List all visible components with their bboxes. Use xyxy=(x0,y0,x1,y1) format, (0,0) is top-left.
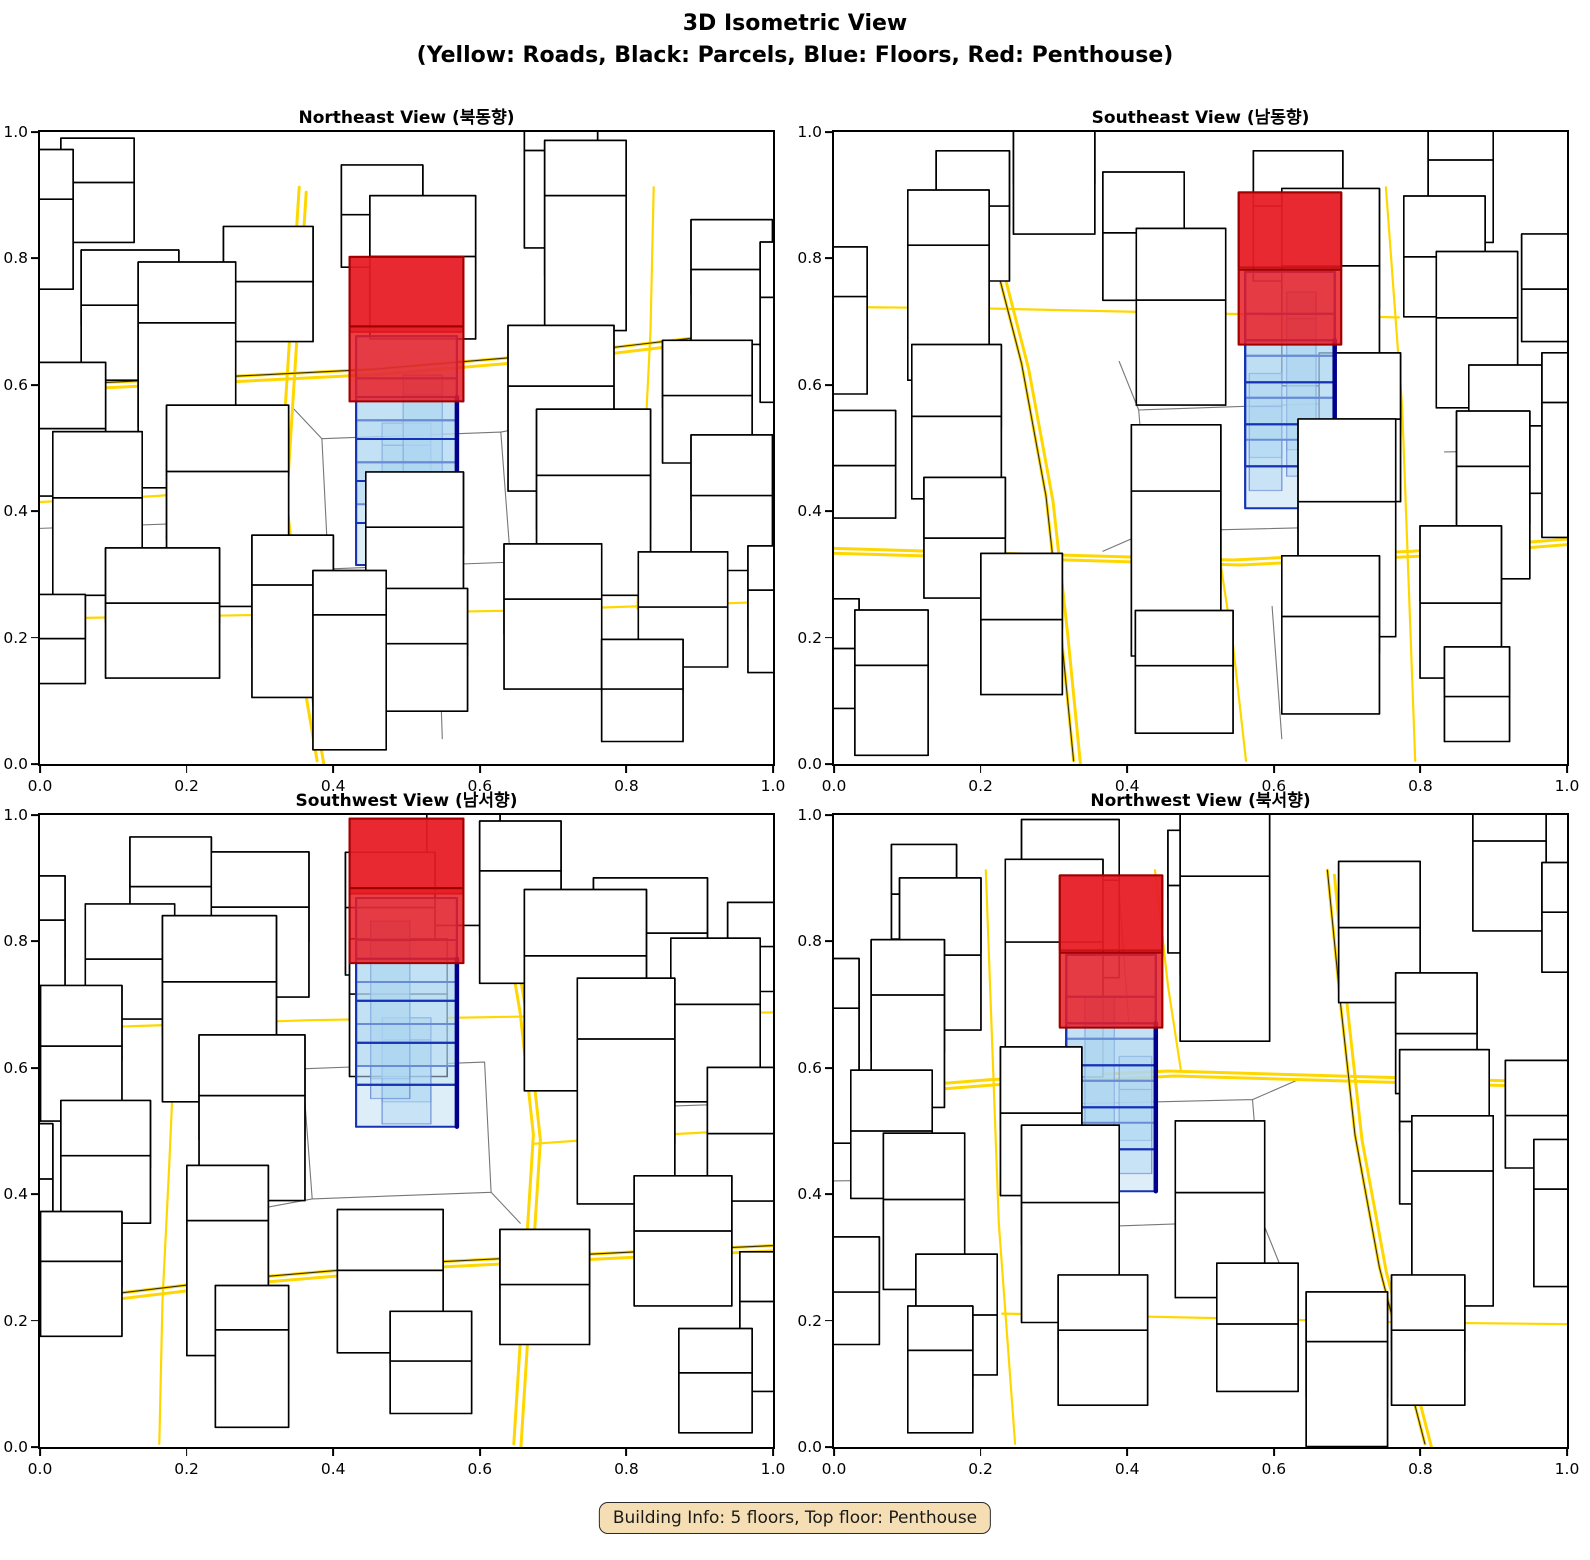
x-tick-mark xyxy=(332,766,334,773)
subplot-northwest: Northwest View (북서향) 0.00.00.20.20.40.40… xyxy=(832,813,1569,1449)
scene-northeast xyxy=(40,132,773,764)
figure: 3D Isometric View (Yellow: Roads, Black:… xyxy=(0,0,1590,1560)
x-tick-mark xyxy=(1419,1449,1421,1456)
y-tick-mark xyxy=(825,814,832,816)
y-tick-mark xyxy=(31,510,38,512)
y-tick-label: 1.0 xyxy=(797,806,822,824)
x-tick-mark xyxy=(332,1449,334,1456)
x-tick-label: 0.8 xyxy=(1408,1460,1433,1478)
x-tick-mark xyxy=(833,1449,835,1456)
x-tick-label: 1.0 xyxy=(761,1460,786,1478)
y-tick-mark xyxy=(825,510,832,512)
subplot-northeast: Northeast View (북동향) 0.00.00.20.20.40.40… xyxy=(38,130,775,766)
x-tick-mark xyxy=(625,1449,627,1456)
x-tick-mark xyxy=(625,766,627,773)
y-tick-mark xyxy=(31,763,38,765)
y-tick-label: 0.6 xyxy=(3,376,28,394)
y-tick-mark xyxy=(825,1446,832,1448)
x-tick-mark xyxy=(1566,1449,1568,1456)
x-tick-label: 0.4 xyxy=(1115,1460,1140,1478)
y-tick-label: 1.0 xyxy=(3,806,28,824)
building-info-annotation: Building Info: 5 floors, Top floor: Pent… xyxy=(599,1502,991,1534)
subplot-northeast-title: Northeast View (북동향) xyxy=(38,103,775,128)
y-tick-label: 0.0 xyxy=(3,1438,28,1456)
x-tick-mark xyxy=(39,766,41,773)
x-tick-label: 0.2 xyxy=(174,1460,199,1478)
subplot-southeast-title: Southeast View (남동향) xyxy=(832,103,1569,128)
y-tick-mark xyxy=(825,131,832,133)
subplot-northwest-title: Northwest View (북서향) xyxy=(832,786,1569,811)
scene-southeast xyxy=(834,132,1567,764)
subplot-southwest: Southwest View (남서향) 0.00.00.20.20.40.40… xyxy=(38,813,775,1449)
y-tick-mark xyxy=(31,257,38,259)
y-tick-label: 0.4 xyxy=(3,1185,28,1203)
x-tick-mark xyxy=(980,766,982,773)
y-tick-label: 0.8 xyxy=(3,249,28,267)
figure-title: 3D Isometric View (Yellow: Roads, Black:… xyxy=(0,8,1590,72)
y-tick-label: 0.0 xyxy=(797,755,822,773)
y-tick-label: 0.4 xyxy=(797,502,822,520)
y-tick-mark xyxy=(825,763,832,765)
y-tick-mark xyxy=(825,1067,832,1069)
y-tick-label: 0.8 xyxy=(797,249,822,267)
y-tick-mark xyxy=(825,257,832,259)
x-tick-mark xyxy=(772,1449,774,1456)
y-tick-mark xyxy=(825,384,832,386)
y-tick-label: 0.0 xyxy=(797,1438,822,1456)
scene-northwest xyxy=(834,815,1567,1447)
x-tick-label: 0.0 xyxy=(28,1460,53,1478)
y-tick-label: 0.6 xyxy=(797,376,822,394)
y-tick-mark xyxy=(31,384,38,386)
y-tick-mark xyxy=(31,1067,38,1069)
y-tick-label: 0.8 xyxy=(797,932,822,950)
x-tick-mark xyxy=(1273,766,1275,773)
y-tick-mark xyxy=(31,814,38,816)
y-tick-label: 1.0 xyxy=(797,123,822,141)
y-tick-mark xyxy=(825,1193,832,1195)
figure-title-line1: 3D Isometric View xyxy=(0,8,1590,40)
subplot-southeast: Southeast View (남동향) 0.00.00.20.20.40.40… xyxy=(832,130,1569,766)
y-tick-label: 0.2 xyxy=(3,1312,28,1330)
x-tick-label: 0.8 xyxy=(614,1460,639,1478)
plot-area-northwest: 0.00.00.20.20.40.40.60.60.80.81.01.0 xyxy=(832,813,1569,1449)
y-tick-mark xyxy=(31,1320,38,1322)
y-tick-label: 0.2 xyxy=(797,1312,822,1330)
y-tick-mark xyxy=(825,940,832,942)
x-tick-mark xyxy=(1126,1449,1128,1456)
x-tick-mark xyxy=(1273,1449,1275,1456)
y-tick-label: 0.8 xyxy=(3,932,28,950)
y-tick-mark xyxy=(825,1320,832,1322)
y-tick-mark xyxy=(31,637,38,639)
y-tick-mark xyxy=(31,1446,38,1448)
x-tick-mark xyxy=(833,766,835,773)
x-tick-mark xyxy=(980,1449,982,1456)
scene-southwest xyxy=(40,815,773,1447)
y-tick-label: 1.0 xyxy=(3,123,28,141)
x-tick-label: 0.2 xyxy=(968,1460,993,1478)
y-tick-label: 0.2 xyxy=(3,629,28,647)
y-tick-label: 0.0 xyxy=(3,755,28,773)
y-tick-mark xyxy=(825,637,832,639)
x-tick-label: 0.4 xyxy=(321,1460,346,1478)
x-tick-label: 0.0 xyxy=(822,1460,847,1478)
subplot-southwest-title: Southwest View (남서향) xyxy=(38,786,775,811)
x-tick-mark xyxy=(186,766,188,773)
y-tick-label: 0.4 xyxy=(3,502,28,520)
y-tick-mark xyxy=(31,131,38,133)
x-tick-label: 1.0 xyxy=(1555,1460,1580,1478)
figure-title-line2: (Yellow: Roads, Black: Parcels, Blue: Fl… xyxy=(0,40,1590,72)
y-tick-label: 0.4 xyxy=(797,1185,822,1203)
x-tick-mark xyxy=(186,1449,188,1456)
y-tick-mark xyxy=(31,1193,38,1195)
x-tick-mark xyxy=(1419,766,1421,773)
y-tick-mark xyxy=(31,940,38,942)
x-tick-mark xyxy=(39,1449,41,1456)
plot-area-southeast: 0.00.00.20.20.40.40.60.60.80.81.01.0 xyxy=(832,130,1569,766)
x-tick-mark xyxy=(479,766,481,773)
y-tick-label: 0.2 xyxy=(797,629,822,647)
plot-area-southwest: 0.00.00.20.20.40.40.60.60.80.81.01.0 xyxy=(38,813,775,1449)
x-tick-label: 0.6 xyxy=(1261,1460,1286,1478)
x-tick-mark xyxy=(1566,766,1568,773)
y-tick-label: 0.6 xyxy=(797,1059,822,1077)
plot-area-northeast: 0.00.00.20.20.40.40.60.60.80.81.01.0 xyxy=(38,130,775,766)
x-tick-label: 0.6 xyxy=(467,1460,492,1478)
y-tick-label: 0.6 xyxy=(3,1059,28,1077)
x-tick-mark xyxy=(1126,766,1128,773)
x-tick-mark xyxy=(772,766,774,773)
x-tick-mark xyxy=(479,1449,481,1456)
